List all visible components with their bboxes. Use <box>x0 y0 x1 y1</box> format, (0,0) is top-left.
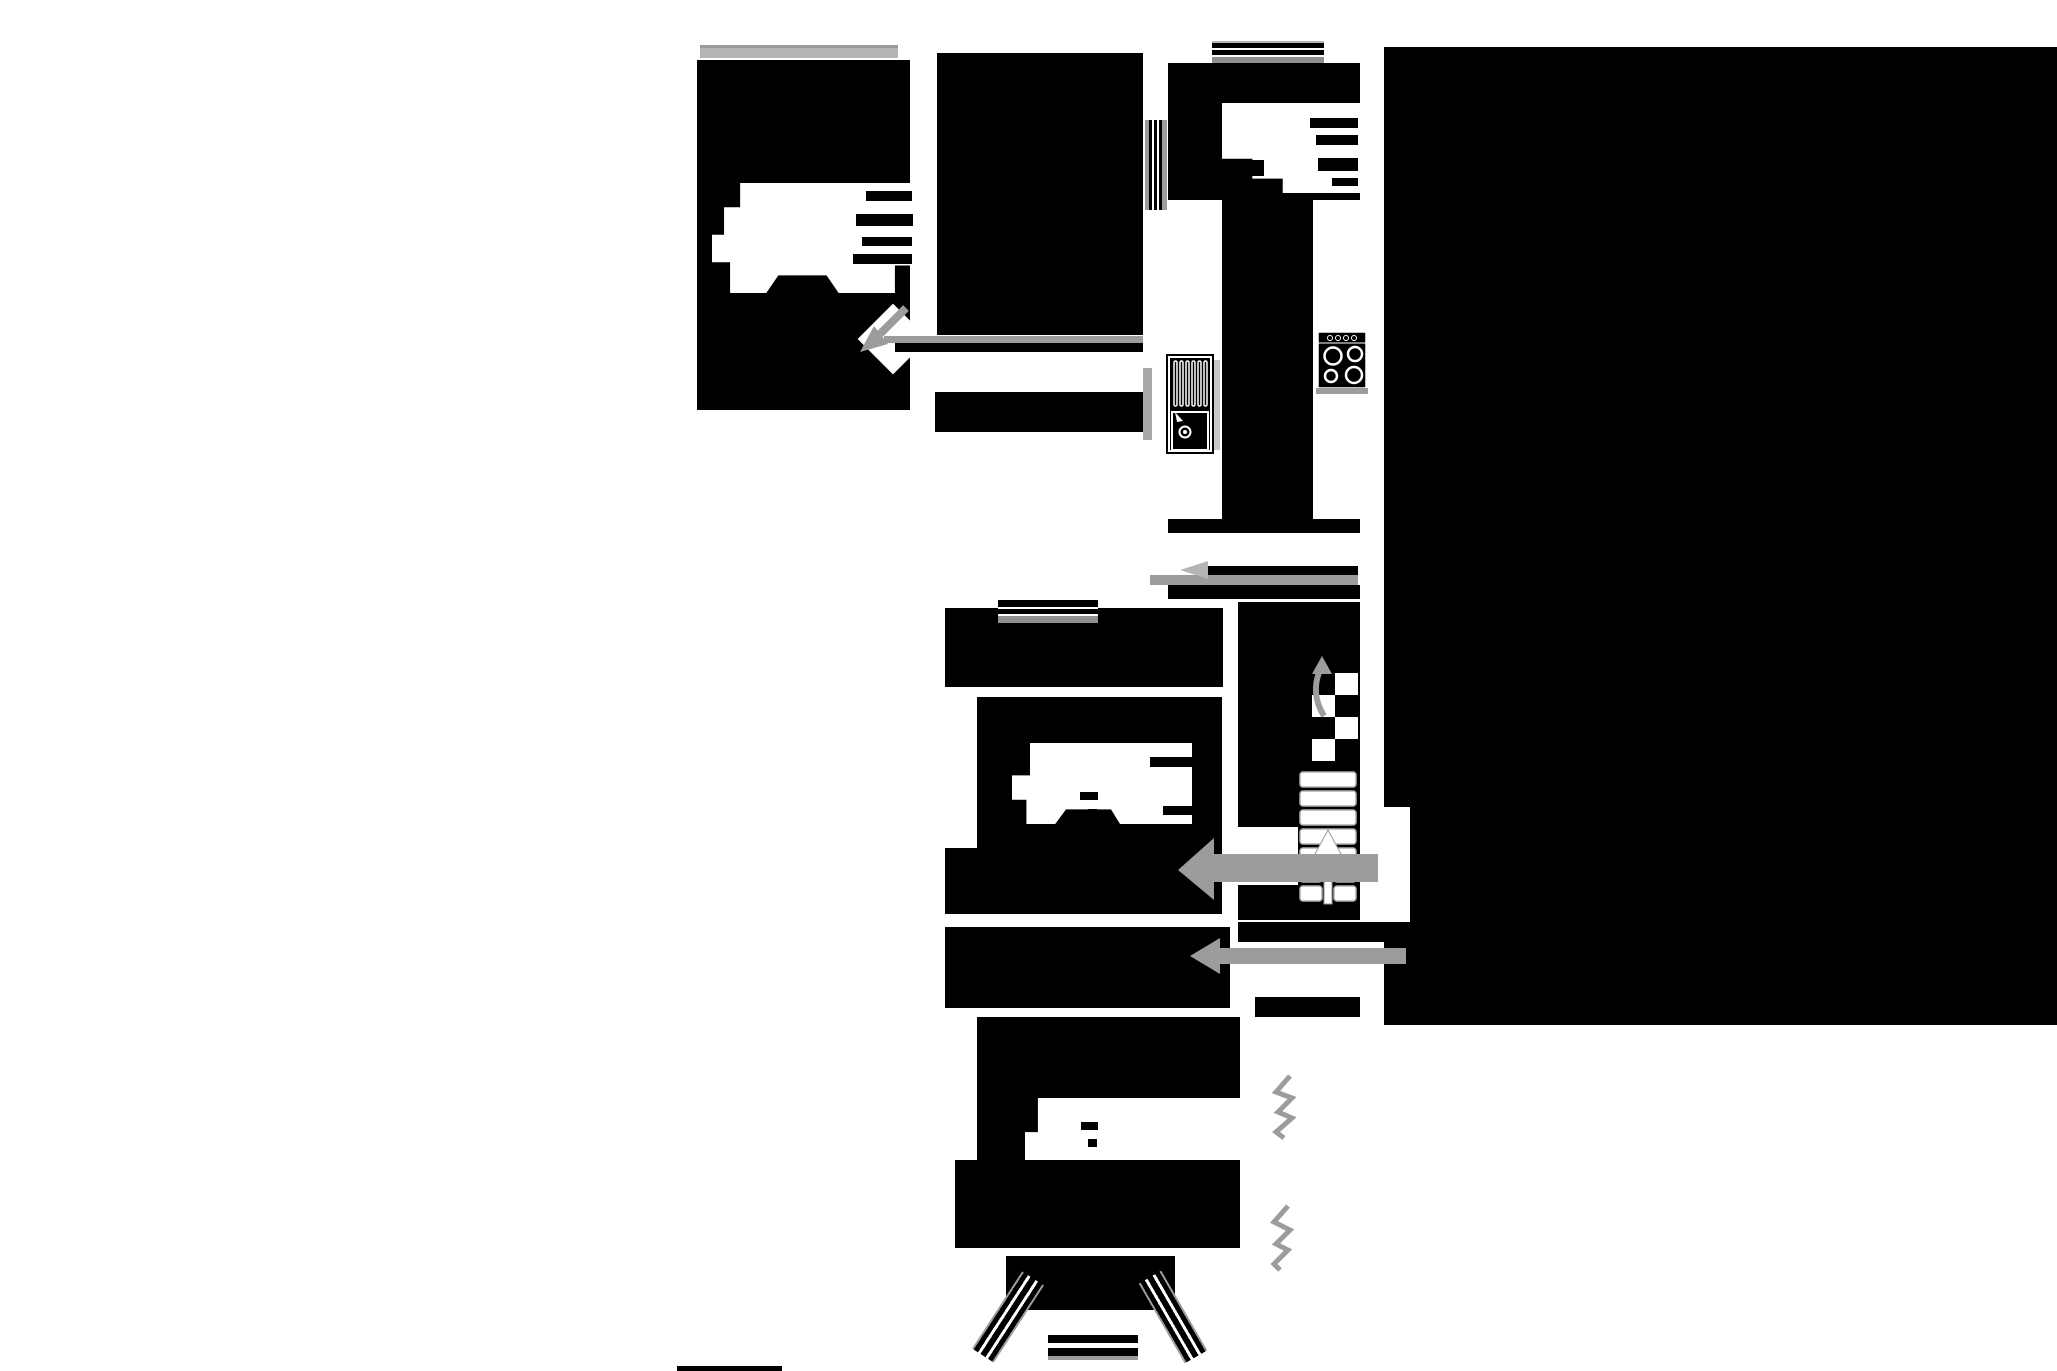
wall-segment <box>1168 585 1360 599</box>
stairs-part <box>1300 810 1356 825</box>
label-dot <box>1248 160 1264 176</box>
direction-arrow-icon-part <box>1220 948 1406 964</box>
hall-gray-line <box>884 336 1143 343</box>
room-band-3 <box>945 927 1230 1008</box>
arrowhead-icon-part <box>1180 561 1208 579</box>
label-dash <box>856 214 913 226</box>
sink-icon-part <box>1183 430 1187 434</box>
wall-segment <box>1255 997 1360 1017</box>
entrance-arrow-icon-part <box>1214 854 1378 882</box>
label-dash <box>866 191 912 201</box>
label-dot <box>1088 1139 1097 1147</box>
window-kitchen-top <box>1212 41 1324 63</box>
break-line <box>1270 1204 1296 1272</box>
door-swing-arrow-icon <box>1306 656 1342 718</box>
room-block-b <box>937 53 1143 335</box>
room-label-blob-lower <box>1025 1098 1240 1160</box>
window-top-left <box>700 45 898 58</box>
entrance-arrow-icon <box>1178 838 1378 900</box>
label-dash <box>1316 135 1358 145</box>
break-line-part <box>1274 1206 1290 1270</box>
direction-arrow-icon-part <box>1190 938 1220 974</box>
entry-arrow-icon-part <box>880 308 906 334</box>
label-dash <box>862 237 912 246</box>
building-mass <box>1384 47 2057 1025</box>
wall-segment <box>935 392 1143 432</box>
label-dot <box>1081 1122 1098 1130</box>
sink-icon <box>1166 354 1222 456</box>
sink-icon-part <box>1214 360 1220 450</box>
room-band-4-ext <box>955 1160 977 1248</box>
break-line-part <box>1276 1076 1292 1138</box>
entrance-arrow-icon-part <box>1178 838 1214 900</box>
checker-cell <box>1335 717 1358 739</box>
cut-off-bar <box>677 1366 782 1371</box>
wall-segment <box>1207 566 1358 575</box>
arrowhead-icon <box>1180 561 1210 579</box>
label-dot <box>1080 792 1098 800</box>
label-dash <box>853 254 912 264</box>
label-dash <box>1163 806 1192 815</box>
label-dash <box>1150 757 1192 767</box>
wall-segment <box>895 343 1143 352</box>
door-leaf <box>1143 368 1152 440</box>
building-mass-notch <box>1384 807 1410 922</box>
room-band-2-ext <box>945 848 977 914</box>
stove-icon-part <box>1316 388 1368 394</box>
floor-plan-canvas <box>0 0 2057 1371</box>
label-dot <box>1088 809 1097 817</box>
stairs-part <box>1300 772 1356 787</box>
porch-window <box>1048 1335 1138 1360</box>
stairs-part <box>1300 791 1356 806</box>
label-dash <box>1318 158 1358 171</box>
window-band-1 <box>998 600 1098 623</box>
label-dash <box>1310 118 1358 128</box>
door-swing-arrow-icon-part <box>1316 670 1324 716</box>
stove-icon <box>1316 332 1368 394</box>
break-line <box>1272 1074 1298 1140</box>
direction-arrow-icon <box>1190 938 1406 974</box>
checker-cell <box>1312 739 1335 761</box>
window-kitchen-left <box>1145 120 1167 210</box>
label-dash <box>1332 178 1358 186</box>
door-swing-arrow-icon-part <box>1312 656 1332 674</box>
